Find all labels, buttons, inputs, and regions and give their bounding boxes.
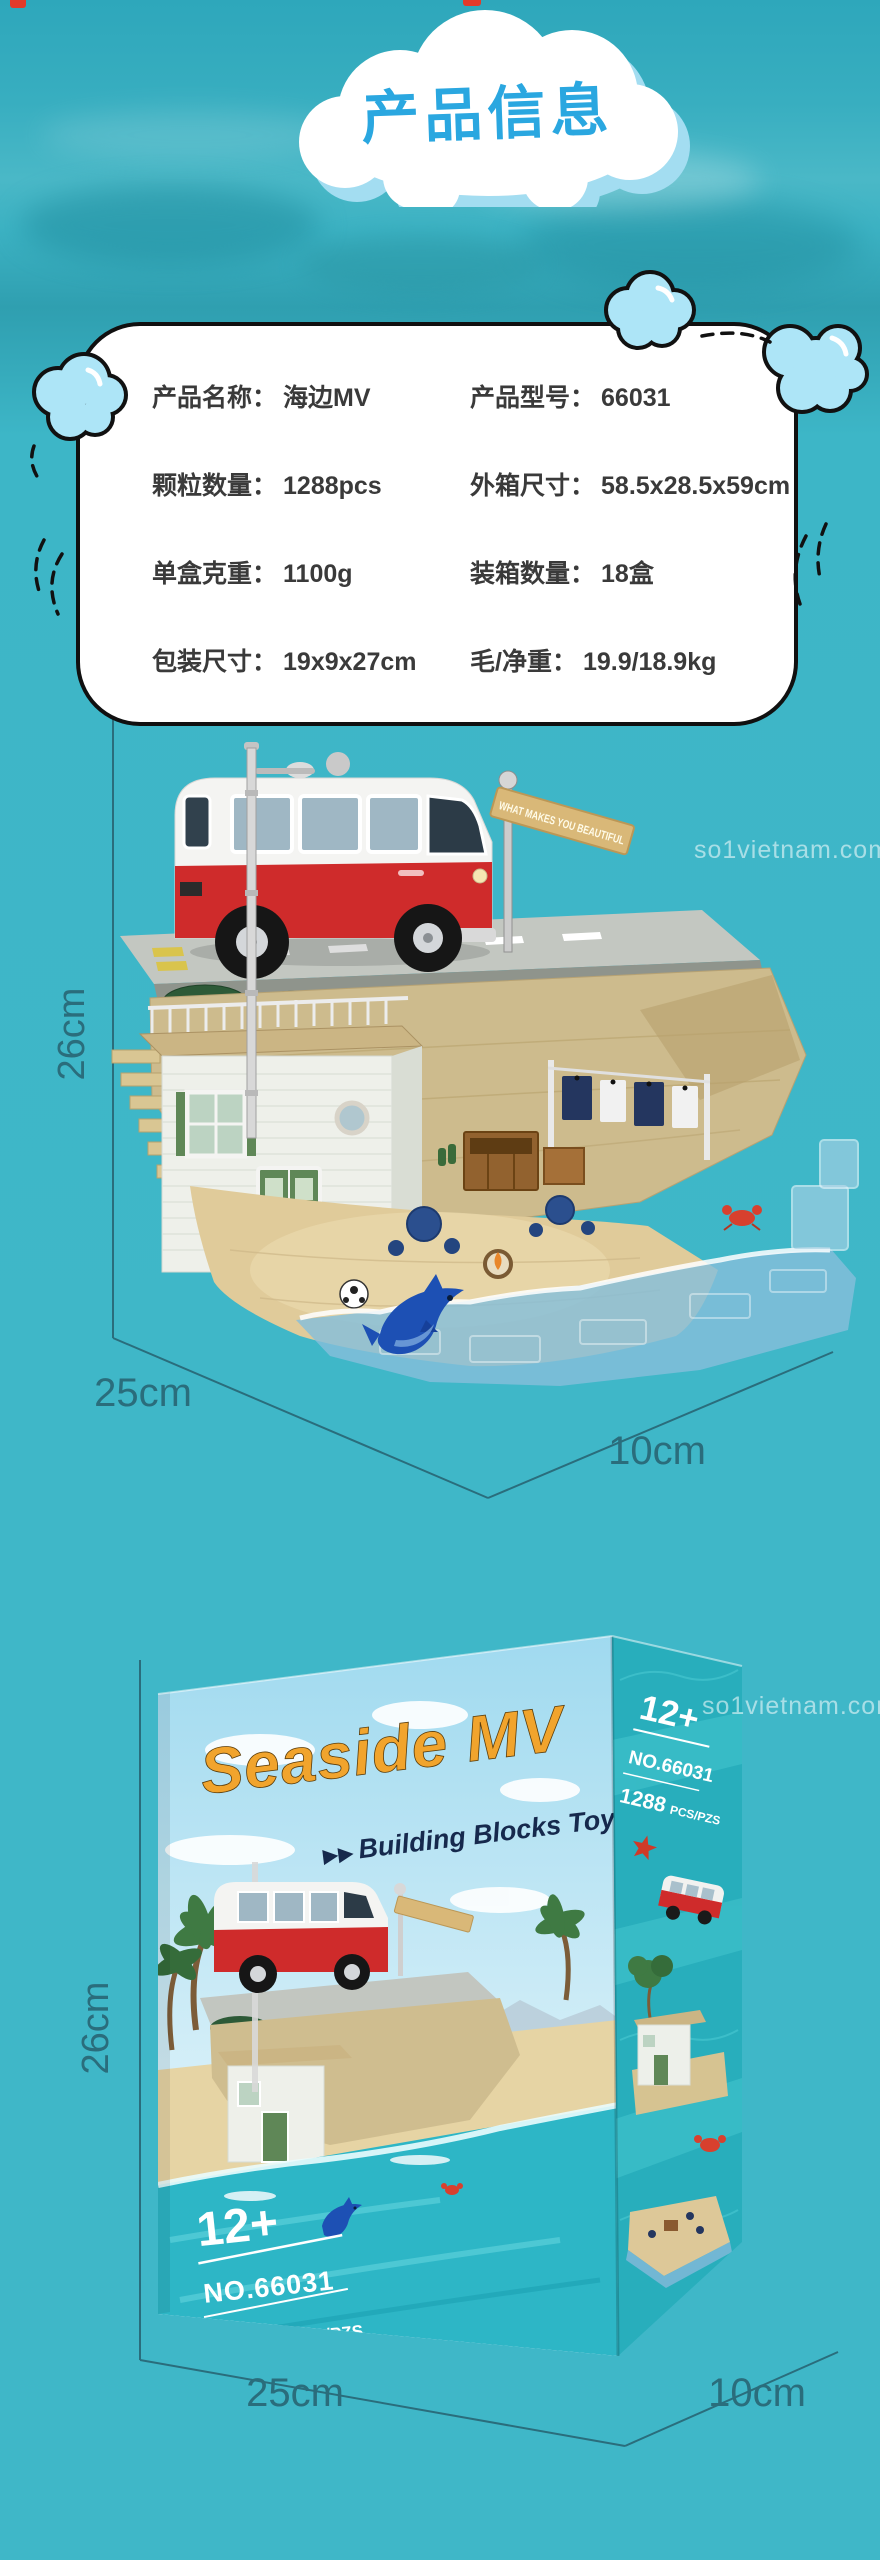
box-front-face: Seaside MV ▶▶ Building Blocks Toy 12+ NO… — [150, 1620, 630, 2360]
info-value: 58.5x28.5x59cm — [601, 472, 790, 501]
box-width-label: 25cm — [246, 2371, 344, 2415]
info-value: 1288pcs — [283, 472, 382, 501]
info-cell-package-size: 包装尺寸： 19x9x27cm — [152, 642, 470, 678]
info-label: 外箱尺寸： — [470, 466, 595, 502]
model-depth-label: 10cm — [608, 1429, 706, 1473]
product-info-card: 产品名称： 海边MV 产品型号： 66031 颗粒数量： 1288pcs 外箱尺… — [76, 322, 798, 726]
info-label: 装箱数量： — [470, 554, 595, 590]
info-value: 66031 — [601, 384, 671, 413]
info-cell-piece-count: 颗粒数量： 1288pcs — [152, 466, 470, 502]
box-height-label: 26cm — [75, 1982, 117, 2075]
van-wheel — [394, 904, 462, 972]
page-title: 产品信息 — [360, 78, 614, 152]
info-cell-box-weight: 单盒克重： 1100g — [152, 554, 470, 590]
background-treeline-smudge — [520, 200, 860, 290]
blue-table — [407, 1207, 441, 1241]
info-value: 19x9x27cm — [283, 648, 416, 677]
box-photo: 26cm 25cm 10cm — [0, 1600, 880, 2500]
info-row: 单盒克重： 1100g 装箱数量： 18盒 — [80, 554, 794, 590]
info-value: 19.9/18.9kg — [583, 648, 716, 677]
top-left-red-mark — [10, 0, 26, 8]
watermark: so1vietnam.com — [694, 836, 880, 865]
info-label: 包装尺寸： — [152, 642, 277, 678]
info-label: 毛/净重： — [470, 642, 577, 678]
page-background: 产品信息 产品名称： 海边MV 产品型号： 66031 颗粒数量： 1288pc… — [0, 0, 880, 2560]
info-cell-product-name: 产品名称： 海边MV — [152, 378, 470, 414]
info-row: 产品名称： 海边MV 产品型号： 66031 — [80, 378, 794, 414]
box-tagline-arrows-icon: ▶▶ — [322, 1842, 356, 1868]
watermark: so1vietnam.com — [702, 1692, 880, 1721]
porthole — [337, 1103, 367, 1133]
info-label: 单盒克重： — [152, 554, 277, 590]
starfish-icon — [690, 2287, 714, 2310]
info-label: 产品型号： — [470, 378, 595, 414]
soccer-ball — [340, 1280, 368, 1308]
info-row: 包装尺寸： 19x9x27cm 毛/净重： 19.9/18.9kg — [80, 642, 794, 678]
info-cell-carton-qty: 装箱数量： 18盒 — [470, 554, 654, 590]
info-cell-gross-net-weight: 毛/净重： 19.9/18.9kg — [470, 642, 716, 678]
box-front-pieces: 1288 — [207, 2318, 279, 2360]
campfire — [485, 1251, 511, 1277]
header-cloud: 产品信息 — [250, 0, 730, 207]
box-front-age: 12+ — [194, 2196, 281, 2257]
blue-table — [546, 1196, 574, 1224]
box-depth-label: 10cm — [708, 2371, 806, 2415]
box-side-face: 12+ NO.66031 1288 PCS/PZS — [612, 1636, 746, 2356]
info-value: 海边MV — [283, 378, 371, 414]
info-value: 18盒 — [601, 554, 654, 590]
crab — [722, 1205, 762, 1230]
info-cell-model-no: 产品型号： 66031 — [470, 378, 671, 414]
info-cell-carton-size: 外箱尺寸： 58.5x28.5x59cm — [470, 466, 790, 502]
info-row: 颗粒数量： 1288pcs 外箱尺寸： 58.5x28.5x59cm — [80, 466, 794, 502]
model-width-label: 25cm — [94, 1371, 192, 1415]
info-label: 产品名称： — [152, 378, 277, 414]
background-treeline-smudge — [300, 235, 540, 295]
info-label: 颗粒数量： — [152, 466, 277, 502]
model-height-label: 26cm — [51, 988, 93, 1081]
info-value: 1100g — [283, 560, 353, 589]
model-photo: 26cm 25cm 10cm — [0, 630, 880, 1530]
